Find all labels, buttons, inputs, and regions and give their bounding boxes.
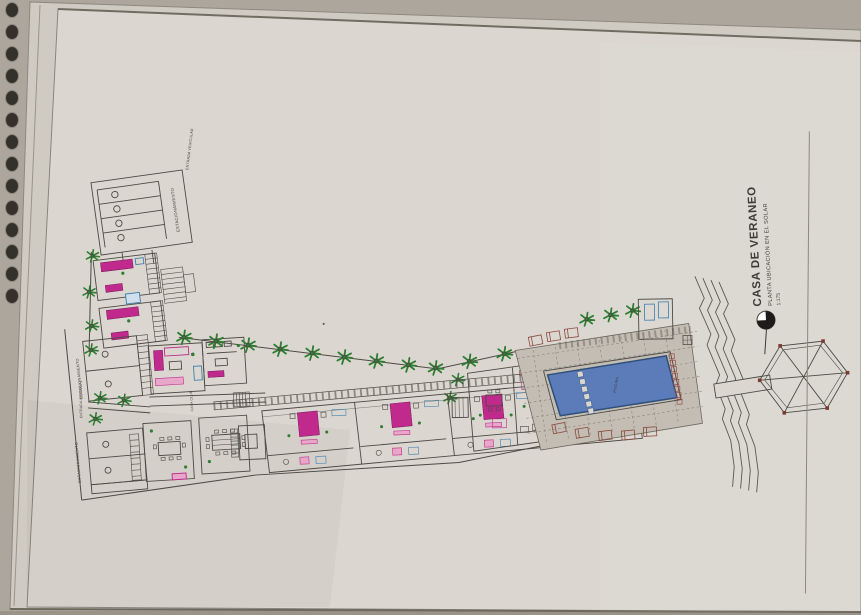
photo-of-architectural-plan: ESTACIONAMIENTO ENTRADA VEHICULAR [0,0,861,615]
plan-scale: 1:175 [776,293,783,306]
plan-photo-canvas: ESTACIONAMIENTO ENTRADA VEHICULAR [0,0,861,615]
pedestrian-entrance-label: ENTRADA PEATONAL [79,380,84,418]
